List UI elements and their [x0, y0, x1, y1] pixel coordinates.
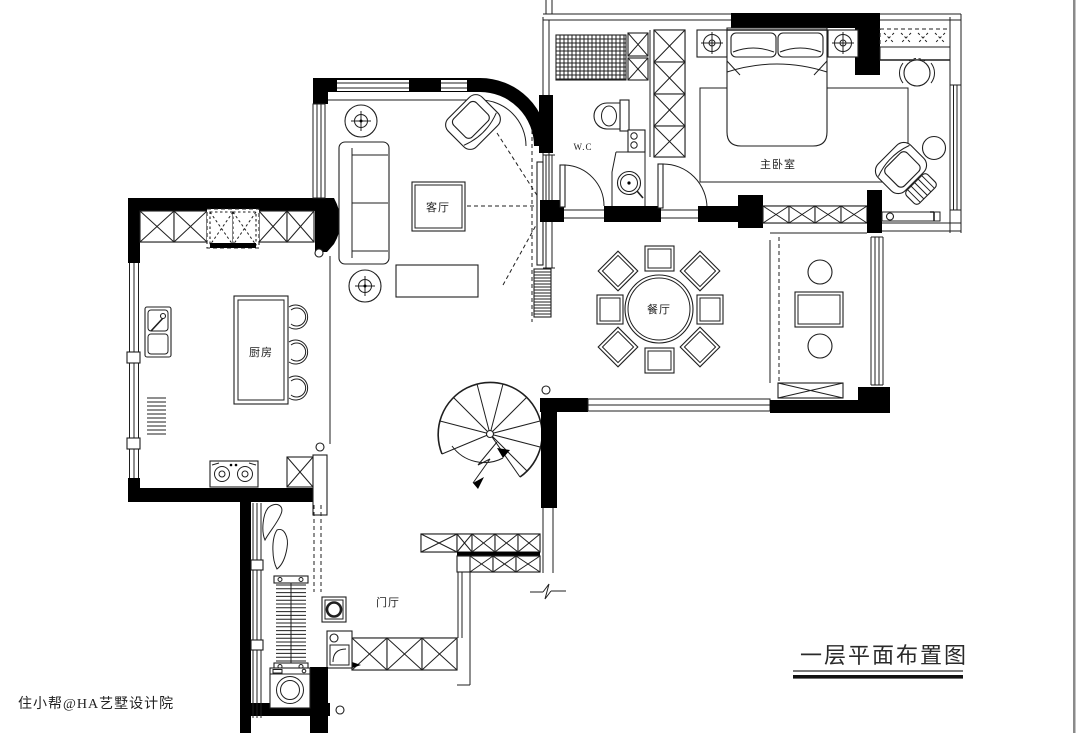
drying-rack — [274, 576, 308, 670]
foyer-boundary — [457, 572, 470, 685]
dining-table: 餐厅 — [625, 275, 693, 343]
room-foyer: 门厅 — [322, 500, 566, 685]
room-kitchen: 厨房 — [127, 198, 341, 515]
foyer-label: 门厅 — [376, 595, 400, 609]
sofa — [339, 142, 389, 264]
door-stop — [542, 386, 550, 394]
room-tea — [770, 233, 890, 412]
washing-machine — [270, 668, 310, 708]
title-underline-thick — [793, 675, 963, 679]
wall — [128, 488, 317, 502]
window-bench-cabinets — [763, 206, 867, 223]
wall — [313, 78, 328, 104]
wall — [541, 500, 557, 508]
wall — [858, 387, 890, 412]
room-wc: W.C — [540, 0, 661, 222]
wall — [604, 206, 661, 222]
room-living: 客厅 — [313, 78, 555, 322]
bedroom-right-window — [950, 14, 961, 233]
side-table — [923, 137, 946, 160]
wall — [738, 195, 763, 228]
round-chair — [808, 334, 832, 358]
wall — [867, 190, 882, 233]
side-table-crosshair — [349, 270, 381, 302]
page-border — [1073, 0, 1076, 733]
faucet — [161, 314, 166, 319]
wall — [698, 206, 738, 222]
tv-cabinet — [534, 269, 551, 317]
bedroom-label: 主卧室 — [760, 157, 796, 171]
wc-door — [560, 165, 604, 207]
wall — [240, 488, 251, 733]
refrigerator — [207, 209, 259, 248]
room-master-bedroom: 主卧室 — [654, 13, 961, 233]
foyer-cabinets — [352, 638, 457, 670]
watermark: 住小帮@HA艺墅设计院 — [18, 696, 174, 712]
tv-sight-lines — [467, 133, 540, 285]
wall — [128, 198, 140, 263]
door-stop — [316, 443, 324, 451]
wardrobe — [654, 30, 685, 157]
floor-plan-canvas: 厨房 — [0, 0, 1080, 733]
wall — [731, 13, 880, 28]
kitchen-window — [127, 263, 140, 478]
tea-table — [795, 292, 843, 327]
coffee-table: 客厅 — [412, 182, 465, 231]
dining-window — [588, 399, 770, 411]
wall-corner — [315, 198, 341, 252]
tea-room-window — [871, 237, 883, 385]
break-symbol — [530, 584, 566, 599]
nightstand — [828, 30, 858, 57]
nightstand — [697, 30, 727, 57]
round-chair — [808, 260, 832, 284]
title-block: 一层平面布置图 — [793, 643, 968, 679]
window-ledge — [882, 212, 961, 231]
bar-stools — [289, 305, 308, 400]
direction-arrow — [452, 446, 503, 463]
washer-unit — [628, 130, 645, 152]
wall — [310, 667, 328, 733]
kitchen-label: 厨房 — [249, 346, 273, 359]
closet-hanging — [880, 29, 950, 60]
mop-sink — [327, 631, 352, 668]
dining-label: 餐厅 — [647, 302, 671, 316]
wc-label: W.C — [574, 142, 593, 152]
kitchen-island: 厨房 — [234, 296, 288, 404]
door-stop — [336, 706, 344, 714]
floor-drain — [322, 597, 346, 622]
wall — [541, 412, 557, 507]
shower — [556, 35, 626, 80]
living-left-window — [313, 104, 325, 198]
door-stop — [315, 249, 323, 257]
vanity-basin — [612, 152, 645, 210]
side-table-crosshair — [345, 105, 377, 137]
balcony-window — [251, 503, 263, 718]
spiral-staircase — [438, 382, 557, 507]
shoe-cabinets — [421, 534, 540, 572]
round-chair — [899, 58, 934, 86]
kitchen-sink — [145, 307, 171, 357]
double-bed — [727, 28, 827, 146]
wall — [540, 398, 588, 412]
toilet — [594, 100, 629, 131]
wall — [855, 28, 880, 75]
gas-stove — [210, 461, 258, 487]
wall — [539, 95, 553, 153]
living-label: 客厅 — [426, 200, 450, 214]
column — [313, 455, 327, 515]
living-top-windows — [337, 80, 467, 91]
plants — [263, 504, 288, 569]
arrow-head — [497, 448, 510, 458]
drawing-title: 一层平面布置图 — [800, 643, 968, 668]
tv-bench — [396, 265, 478, 297]
